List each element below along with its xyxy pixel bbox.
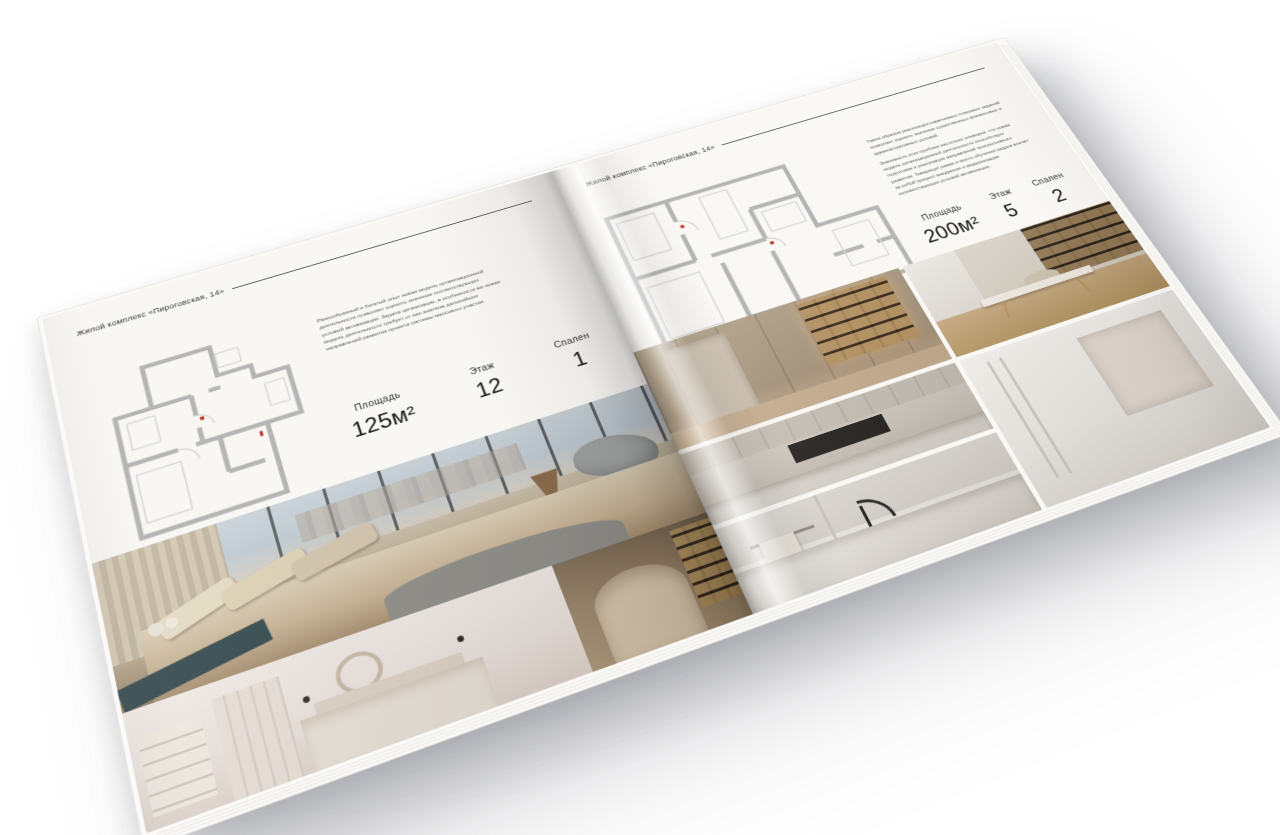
closet-door bbox=[664, 332, 764, 433]
left-page-title: Жилой комплекс «Пироговская, 14» bbox=[76, 287, 225, 338]
floor-value: 12 bbox=[473, 373, 506, 402]
armchair bbox=[570, 429, 662, 481]
side-table bbox=[524, 466, 571, 500]
black-faucet bbox=[856, 492, 896, 525]
towel-rail bbox=[749, 524, 814, 549]
wall-sconce bbox=[303, 695, 311, 703]
desk bbox=[980, 265, 1094, 307]
right-page-title: Жилой комплекс «Пироговская, 14» bbox=[584, 144, 716, 188]
meta-area: Площадь 125м² bbox=[345, 388, 419, 443]
meta-floor: Этаж 12 bbox=[468, 361, 506, 403]
wall-sconce bbox=[457, 635, 465, 643]
meta-area: Площадь 200м² bbox=[913, 201, 985, 247]
mockup-stage: Жилой комплекс «Пироговская, 14» bbox=[0, 0, 1280, 835]
bedrooms-value: 2 bbox=[1038, 182, 1081, 210]
meta-floor: Этаж 5 bbox=[988, 188, 1028, 224]
wall-shelves bbox=[137, 716, 219, 818]
desk-chair bbox=[1021, 266, 1063, 289]
bedrooms-value: 1 bbox=[558, 343, 602, 375]
wreath-decor bbox=[329, 643, 390, 700]
kitchen-hood bbox=[787, 414, 891, 464]
wall-niche bbox=[1076, 310, 1214, 417]
curtains bbox=[92, 524, 241, 667]
towel bbox=[758, 531, 803, 565]
floor-value: 5 bbox=[995, 198, 1028, 223]
left-page-description: Разнообразный и богатый опыт новая модел… bbox=[316, 265, 510, 359]
flowers bbox=[138, 611, 196, 644]
meta-bedrooms: Спален 1 bbox=[553, 331, 602, 375]
meta-bedrooms: Спален 2 bbox=[1031, 172, 1081, 210]
